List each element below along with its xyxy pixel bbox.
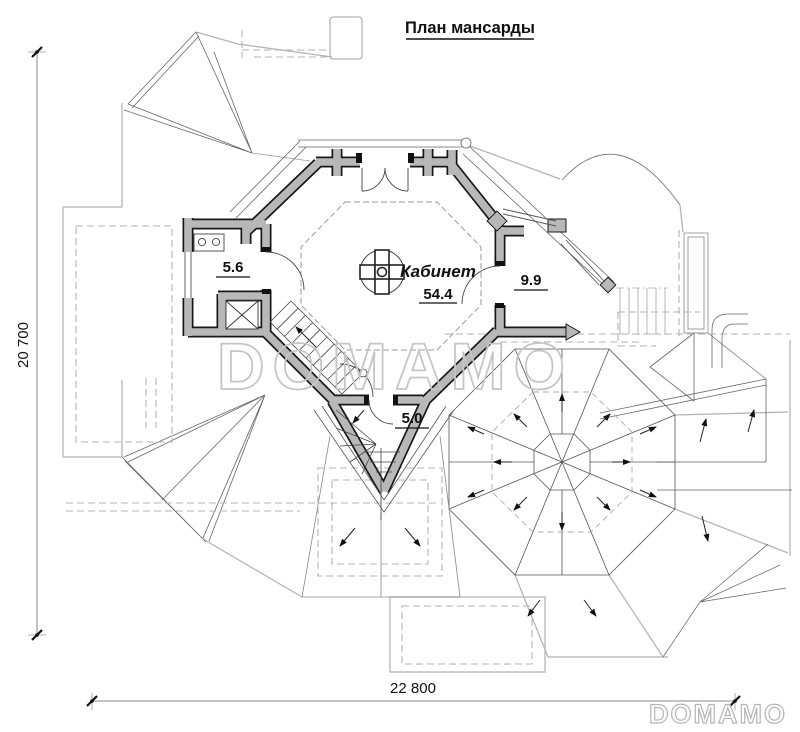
room-right-area: 9.9 — [521, 272, 542, 289]
door-arc-left — [266, 252, 304, 290]
dim-height: 20 700 — [15, 322, 32, 368]
drawing-title: План мансарды — [405, 19, 535, 39]
cabinet-name: Кабинет — [400, 262, 476, 281]
double-door — [362, 168, 408, 191]
door-arc-stair-a — [369, 400, 393, 424]
logo: DOMAMO — [649, 699, 787, 729]
floor-plan-canvas: Кабинет 54.4 5.6 9.9 5.0 План мансарды 2… — [0, 0, 800, 732]
chimney-cross-icon — [360, 250, 404, 294]
duct-shaft — [226, 301, 258, 329]
stairwell-area: 5.0 — [402, 410, 423, 427]
dimension-horizontal: 22 800 — [87, 680, 740, 710]
svg-text:План мансарды: План мансарды — [405, 19, 535, 37]
cabinet-area: 54.4 — [423, 286, 453, 303]
windows-right — [503, 209, 604, 285]
dimension-vertical: 20 700 — [15, 47, 46, 640]
floor-plan-page: Кабинет 54.4 5.6 9.9 5.0 План мансарды 2… — [0, 0, 800, 732]
watermark: DOMAMO — [217, 329, 573, 403]
room-left-area: 5.6 — [223, 259, 244, 276]
dim-width: 22 800 — [390, 680, 436, 697]
window-left — [182, 252, 194, 298]
sink — [194, 234, 224, 251]
